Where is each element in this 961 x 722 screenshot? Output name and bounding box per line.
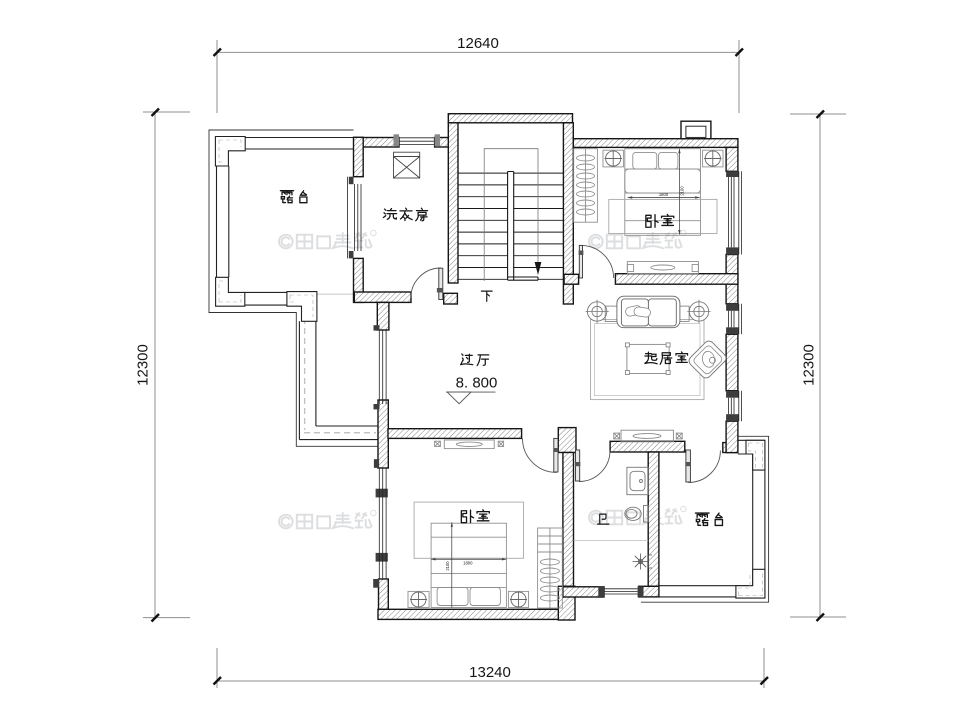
- svg-text:2100: 2100: [680, 186, 685, 196]
- svg-text:1800: 1800: [659, 192, 669, 197]
- svg-text:12300: 12300: [135, 344, 152, 386]
- svg-text:13240: 13240: [469, 664, 511, 681]
- svg-text:8. 800: 8. 800: [456, 375, 498, 392]
- svg-text:2100: 2100: [445, 561, 450, 571]
- svg-text:1800: 1800: [463, 561, 473, 566]
- svg-text:12640: 12640: [457, 35, 499, 52]
- svg-text:12300: 12300: [801, 344, 818, 386]
